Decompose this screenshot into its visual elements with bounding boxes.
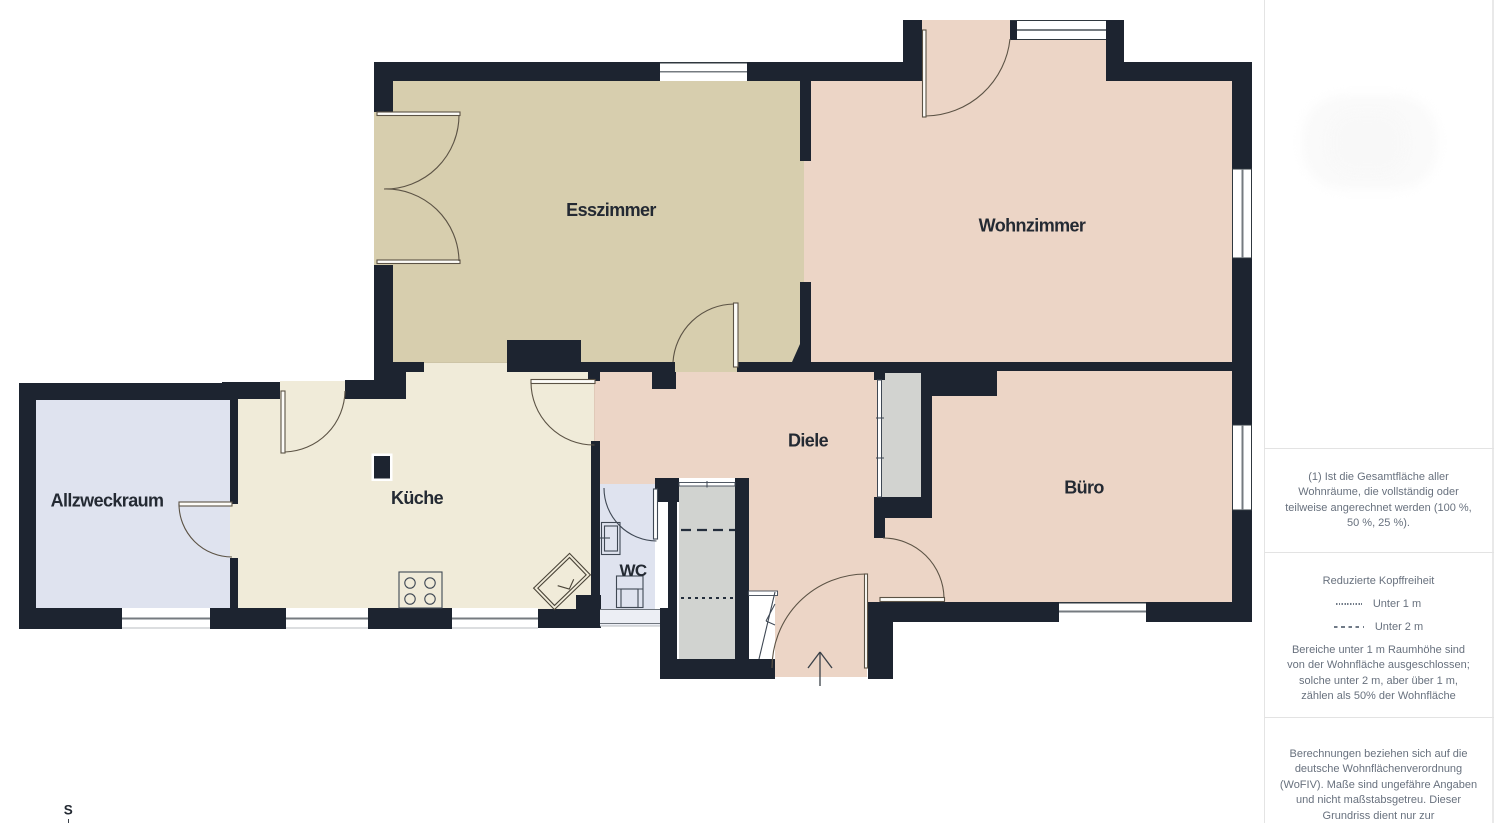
svg-text:Esszimmer: Esszimmer [566, 200, 656, 220]
svg-text:Büro: Büro [1064, 478, 1104, 498]
svg-text:S: S [64, 803, 73, 818]
svg-text:Allzweckraum: Allzweckraum [51, 491, 164, 511]
svg-text:Wohnzimmer: Wohnzimmer [979, 216, 1086, 236]
svg-text:WC: WC [619, 561, 646, 580]
svg-text:Diele: Diele [788, 431, 829, 451]
svg-text:Küche: Küche [391, 488, 444, 508]
